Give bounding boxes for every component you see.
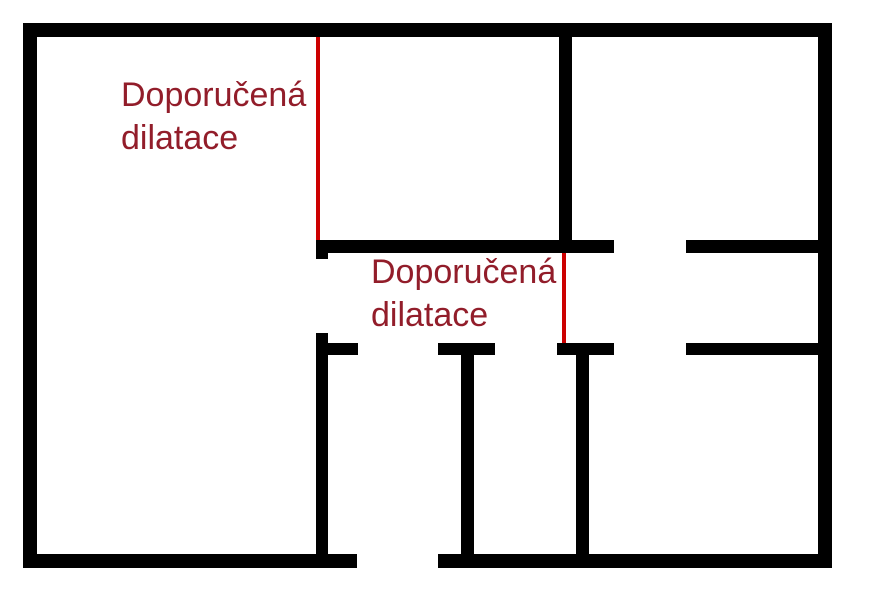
outer-wall-bottom-right xyxy=(438,554,832,568)
dilatation-label-2-line2: dilatace xyxy=(371,294,556,337)
interior-wall-middle-left xyxy=(316,240,614,253)
outer-wall-right xyxy=(818,23,832,568)
dilatation-label-1-line1: Doporučená xyxy=(121,74,306,117)
floor-plan: Doporučená dilatace Doporučená dilatace xyxy=(0,0,877,600)
dilatation-label-1: Doporučená dilatace xyxy=(121,74,306,160)
outer-wall-left xyxy=(23,23,37,568)
interior-wall-t1-stem xyxy=(461,343,474,554)
interior-wall-vertical-top xyxy=(559,37,572,241)
interior-wall-middle-left-endcap xyxy=(316,253,328,259)
dilatation-line-2 xyxy=(562,253,566,343)
dilatation-label-2: Doporučená dilatace xyxy=(371,251,556,337)
interior-wall-t2-stem xyxy=(576,343,589,554)
dilatation-label-2-line1: Doporučená xyxy=(371,251,556,294)
dilatation-label-1-line2: dilatace xyxy=(121,117,306,160)
dilatation-line-1 xyxy=(316,37,320,240)
interior-wall-lower-right xyxy=(686,343,818,355)
interior-wall-arm-left xyxy=(328,343,358,355)
interior-wall-vertical-left-lower xyxy=(316,333,328,554)
interior-wall-middle-right xyxy=(686,240,818,253)
outer-wall-bottom-left xyxy=(23,554,357,568)
outer-wall-top xyxy=(23,23,832,37)
